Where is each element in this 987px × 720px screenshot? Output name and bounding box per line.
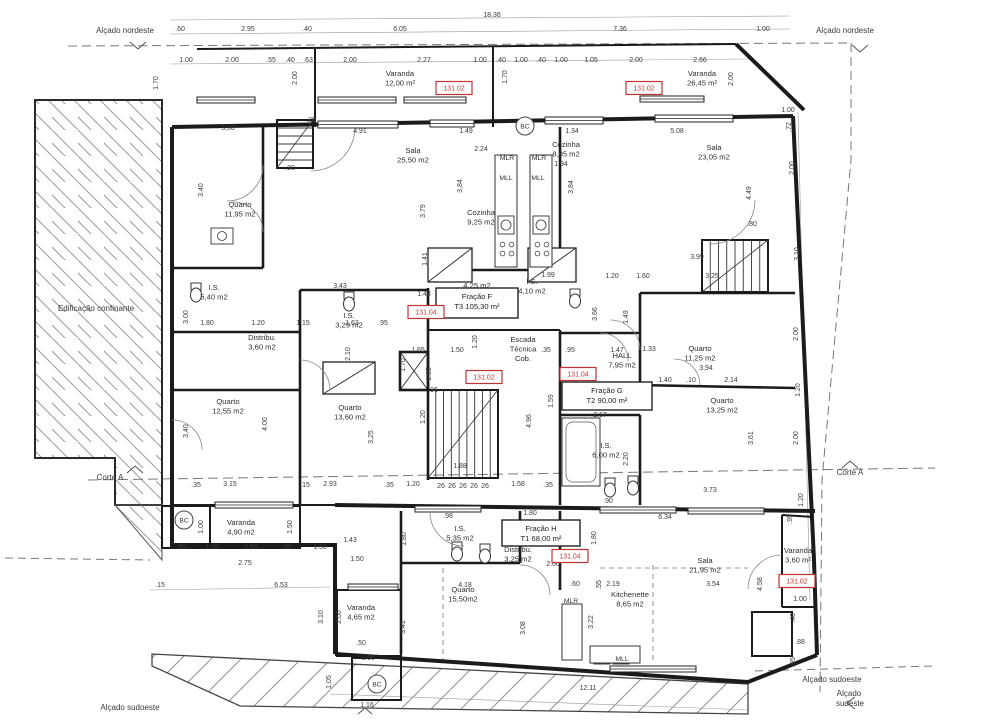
adjacent-building-step (115, 505, 162, 560)
dim-label: 3.10 (794, 247, 801, 261)
room-label: Sala25,50 m2 (397, 146, 429, 165)
room-label: Varanda4,65 m2 (347, 603, 376, 622)
dim-label: 2.24 (474, 146, 488, 153)
kitchenette-counter (562, 604, 582, 660)
property-line-east (820, 43, 851, 692)
dim-label: .95 (790, 657, 797, 667)
dim-label: .95 (565, 347, 575, 354)
dim-label: .35 (541, 347, 551, 354)
kitchen-counter (530, 155, 552, 267)
dim-label: 2.93 (323, 481, 337, 488)
dim-label: 3,84 (568, 180, 575, 194)
dim-label: .50 (356, 640, 366, 647)
dim-label: .95 (787, 514, 794, 524)
dim-label: 12.11 (580, 685, 597, 692)
dim-label: 1.00 (361, 655, 375, 662)
dim-label: 6.34 (658, 514, 672, 521)
dim-label: 2.66 (693, 57, 707, 64)
room-label: Cozinha8,05 m2 (552, 140, 581, 159)
dim-label: .40 (285, 57, 295, 64)
dim-label: 1.99 (541, 272, 555, 279)
dim-label: 2.19 (606, 581, 620, 588)
room-label: Quarto13,60 m2 (334, 403, 366, 422)
dim-label: 1.43 (343, 537, 357, 544)
room-label: Distribu.3,25 m2 (504, 545, 532, 564)
adjacent-building-hatch (35, 100, 162, 505)
room-label: Cozinha9,25 m2 (467, 208, 496, 227)
dim-label: 1.50 (313, 544, 327, 551)
dim-label: .80 (285, 165, 295, 172)
toilet-icon (570, 294, 581, 308)
dim-label: .40 (496, 57, 506, 64)
dim-label: .40 (302, 26, 312, 33)
dim-label: 1.50 (244, 544, 258, 551)
dim-label: 2.00 (225, 57, 239, 64)
wall-balcony-diagonal (736, 44, 804, 110)
room-label: Quarto11,25 m2 (684, 344, 715, 363)
bc-label: BC (520, 123, 529, 130)
dim-label: 1.88 (453, 463, 467, 470)
dim-label: 1.00 (205, 544, 219, 551)
dim-label: 1.50 (350, 556, 364, 563)
fraction-tag-label: 131.02 (473, 375, 495, 382)
dim-label: 1.00 (198, 520, 205, 534)
dim-label: 1.95 (426, 367, 433, 381)
dim-label: 1.70 (153, 76, 160, 90)
toilet-icon (605, 483, 616, 497)
dim-label: 3.43 (333, 283, 347, 290)
fraction-box-label: Fração HT1 68,00 m² (521, 524, 562, 543)
room-label: I.S.5,40 m2 (200, 283, 227, 302)
room-label: Varanda4,90 m2 (227, 518, 256, 537)
dim-label: 1.00 (554, 57, 568, 64)
annotation-label: Corte A (97, 473, 124, 482)
dim-label: 1.60 (636, 273, 650, 280)
bc-label: BC (372, 681, 381, 688)
dim-label: 1.80 (401, 532, 408, 546)
dim-label: 1.50 (450, 347, 464, 354)
dim-label: 2.00 (292, 71, 299, 85)
dim-label: 3,61 (748, 431, 755, 445)
dim-label: 4.00 (262, 417, 269, 431)
dim-label: 1.05 (326, 675, 333, 689)
room-label: Quarto11,95 m2 (224, 200, 255, 219)
dim-label: 1.16 (360, 702, 374, 709)
dim-label: .15 (300, 482, 310, 489)
dim-line-row2 (170, 59, 750, 64)
dim-label: 1.50 (287, 520, 294, 534)
fraction-box-label: Fração GT2 90,00 m² (587, 386, 628, 405)
dim-label: 1.41 (422, 252, 429, 266)
dim-line-row1 (170, 29, 790, 34)
dim-label: 1.00 (514, 57, 528, 64)
dim-label: 26 (459, 483, 467, 490)
dim-label: 3.99 (690, 254, 704, 261)
dim-label: 1.80 (523, 510, 537, 517)
room-label: Kitchenette8,65 m2 (611, 590, 649, 609)
dim-label: .10 (686, 377, 696, 384)
dim-label: 3.10 (318, 610, 325, 624)
dim-label: 1.20 (472, 335, 479, 349)
dim-label: 1.48 (417, 291, 431, 298)
dim-line-overall (170, 16, 790, 20)
exterior-walls (172, 44, 817, 682)
annotation-label: Alçado nordeste (96, 26, 154, 35)
dim-label: 1.00 (793, 596, 807, 603)
dim-label: .40 (790, 613, 797, 623)
dim-label: 3.73 (703, 487, 717, 494)
annotation-label: Edificação confinante (58, 304, 135, 313)
dim-label: 6.05 (393, 26, 407, 33)
room-label: Sala23,05 m2 (698, 143, 730, 162)
dim-label: 3.40 (198, 183, 205, 197)
dim-label: 26 (437, 483, 445, 490)
dim-label: 2.75 (238, 560, 252, 567)
dim-label: .35 (191, 482, 201, 489)
dim-label: .80 (747, 221, 757, 228)
fraction-tag-label: 131.04 (415, 310, 437, 317)
dim-label: .90 (176, 544, 186, 551)
dim-label: 1.20 (605, 273, 619, 280)
annotation-label: Alçado sudoeste (802, 675, 862, 684)
dim-label: 2.00 (793, 431, 800, 445)
dim-label: 1.00 (756, 26, 770, 33)
dim-label: 1.70 (502, 70, 509, 84)
dim-label: 4.18 (458, 582, 472, 589)
appliance-label: MLR (500, 155, 514, 162)
dim-label: 1.80 (591, 531, 598, 545)
property-line-west (5, 558, 150, 560)
dim-label: .63 (303, 57, 313, 64)
dim-label: 1.63 (345, 320, 359, 327)
toilet-icon (452, 547, 463, 561)
kitchen-counter (495, 155, 517, 267)
bc-label: BC (179, 517, 188, 524)
dim-label: .55 (596, 580, 603, 590)
dim-label: 6.53 (274, 582, 288, 589)
dim-label: 2.00 (343, 57, 357, 64)
dim-label: 26 (481, 483, 489, 490)
dim-label: .15 (155, 582, 165, 589)
floorplan-sheet: Varanda12,00 m²Varanda26,45 m²Quarto11,9… (0, 0, 987, 720)
dim-label: 3.00 (183, 310, 190, 324)
dim-label: 1.47 (610, 347, 624, 354)
dim-label: .88 (795, 639, 805, 646)
fraction-tag-label: 131.04 (567, 372, 589, 379)
dim-label: 2.00 (789, 161, 796, 175)
dim-label: 26 (470, 483, 478, 490)
toilet-icon (344, 297, 355, 311)
dim-label: 1.58 (511, 481, 525, 488)
annotation-label: Alçado nordeste (816, 26, 874, 35)
annotation-label: Alçado (837, 689, 862, 698)
dim-label: 1.20 (795, 383, 802, 397)
dim-label: 1.80 (200, 320, 214, 327)
dim-label: .90 (603, 498, 613, 505)
room-label: Varanda12,00 m² (385, 69, 415, 88)
dim-label: 1.59 (548, 394, 555, 408)
annotation-label: sudeste (836, 699, 865, 708)
appliance-label: MLR (532, 155, 546, 162)
dim-label: 1.70 (400, 358, 407, 372)
dim-label: 1.05 (584, 57, 598, 64)
dim-label: 4.91 (353, 128, 367, 135)
dim-label: 4.58 (757, 577, 764, 591)
dim-label: 1.65 (411, 347, 425, 354)
dim-label: 26 (448, 483, 456, 490)
appliance-label: MLL (499, 175, 512, 182)
room-label: Distribu.3,60 m2 (248, 333, 276, 352)
dim-label: 1.20 (251, 320, 265, 327)
dim-label: 3.25 (705, 273, 719, 280)
dim-label: 3,40 (183, 424, 190, 438)
dim-label: .96 (428, 387, 438, 394)
dim-label: 4.49 (746, 186, 753, 200)
dim-label: 2.95 (241, 26, 255, 33)
dim-label: 1.20 (420, 410, 427, 424)
dim-label: .55 (266, 57, 276, 64)
dim-label: 3.66 (592, 307, 599, 321)
room-label: Varanda26,45 m² (687, 69, 717, 88)
dim-label: 3.79 (420, 204, 427, 218)
room-label: Varanda3,60 m² (784, 546, 813, 565)
appliance-label: MLL (531, 175, 544, 182)
washer-icon (498, 216, 514, 234)
dim-label: 1.00 (179, 57, 193, 64)
fraction-tag-label: 131.02 (443, 86, 465, 93)
appliance-label: MLL (615, 656, 628, 663)
dim-label: 3.15 (223, 481, 237, 488)
dim-label: 2.67 (593, 412, 607, 419)
dim-label: 3,94 (699, 365, 713, 372)
dim-label: 1.34 (565, 128, 579, 135)
dim-label: 1.00 (473, 57, 487, 64)
dim-label: 18.36 (483, 12, 501, 19)
annotation-label: Alçado sudoeste (100, 703, 160, 712)
dim-label: 4.96 (526, 414, 533, 428)
room-label: I.S.5,35 m2 (446, 524, 473, 543)
dim-label: 1.49 (459, 128, 473, 135)
floorplan-canvas: Varanda12,00 m²Varanda26,45 m²Quarto11,9… (0, 0, 987, 720)
dim-label: 1.00 (781, 107, 795, 114)
door-swing-arc (748, 555, 782, 589)
toilet-icon (480, 549, 491, 563)
dim-label: 5.08 (670, 128, 684, 135)
dim-label: .60 (175, 26, 185, 33)
room-label: Quarto13,25 m2 (706, 396, 738, 415)
section-arrow-east-icon (842, 461, 858, 468)
toilet-icon (628, 481, 639, 495)
fraction-tag-label: 131.02 (786, 579, 808, 586)
dim-label: .72 (786, 122, 793, 132)
dim-label: 1.20 (406, 481, 420, 488)
dim-label: 2.10 (345, 347, 352, 361)
dim-label: .40 (536, 57, 546, 64)
dim-label: .98 (443, 513, 453, 520)
dim-label: 3,60 (221, 125, 235, 132)
dim-label: .35 (384, 482, 394, 489)
room-label: EscadaTécnicaCob. (510, 335, 537, 363)
dim-label: .95 (378, 320, 388, 327)
room-label: Quarto12,55 m2 (212, 397, 244, 416)
dim-label: 2.00 (336, 610, 343, 624)
dim-label: .60 (570, 581, 580, 588)
door-swing-arc (311, 127, 355, 171)
dim-label: 3,22 (588, 615, 595, 629)
sink-icon (211, 228, 233, 244)
dim-line-sw (150, 587, 330, 590)
dim-label: 2.14 (724, 377, 738, 384)
dim-label: 1.94 (554, 161, 568, 168)
dim-label: 7.36 (613, 26, 627, 33)
dim-label: 3,25 (368, 430, 375, 444)
dim-label: 3,84 (457, 179, 464, 193)
dim-label: .35 (281, 544, 291, 551)
dim-label: 3.54 (706, 581, 720, 588)
appliance-label: MLR (564, 598, 578, 605)
dim-label: 2.27 (417, 57, 431, 64)
dim-label: 2.00 (629, 57, 643, 64)
fraction-tag-label: 131.04 (559, 554, 581, 561)
elevation-arrow-ne-icon (852, 45, 868, 52)
dim-label: 1.33 (642, 346, 656, 353)
dim-label: 1.20 (798, 493, 805, 507)
dim-label: 3.41 (400, 620, 407, 634)
dim-label: 2.00 (728, 72, 735, 86)
dim-label: 1.49 (623, 310, 630, 324)
dim-label: 1.15 (296, 320, 310, 327)
door-swing-arc (520, 565, 550, 595)
dim-label: 3.08 (520, 621, 527, 635)
dim-label: 2.20 (623, 452, 630, 466)
door-swing-arc (227, 165, 263, 201)
fraction-tag-label: 131.02 (633, 86, 655, 93)
dim-label: .35 (543, 482, 553, 489)
dim-label: .25 (306, 117, 316, 124)
dim-label: 1.40 (658, 377, 672, 384)
washer-icon (533, 216, 549, 234)
annotation-label: Corte A (837, 468, 864, 477)
dim-label: 2.00 (793, 327, 800, 341)
room-label: Sala21,95 m2 (689, 556, 721, 575)
